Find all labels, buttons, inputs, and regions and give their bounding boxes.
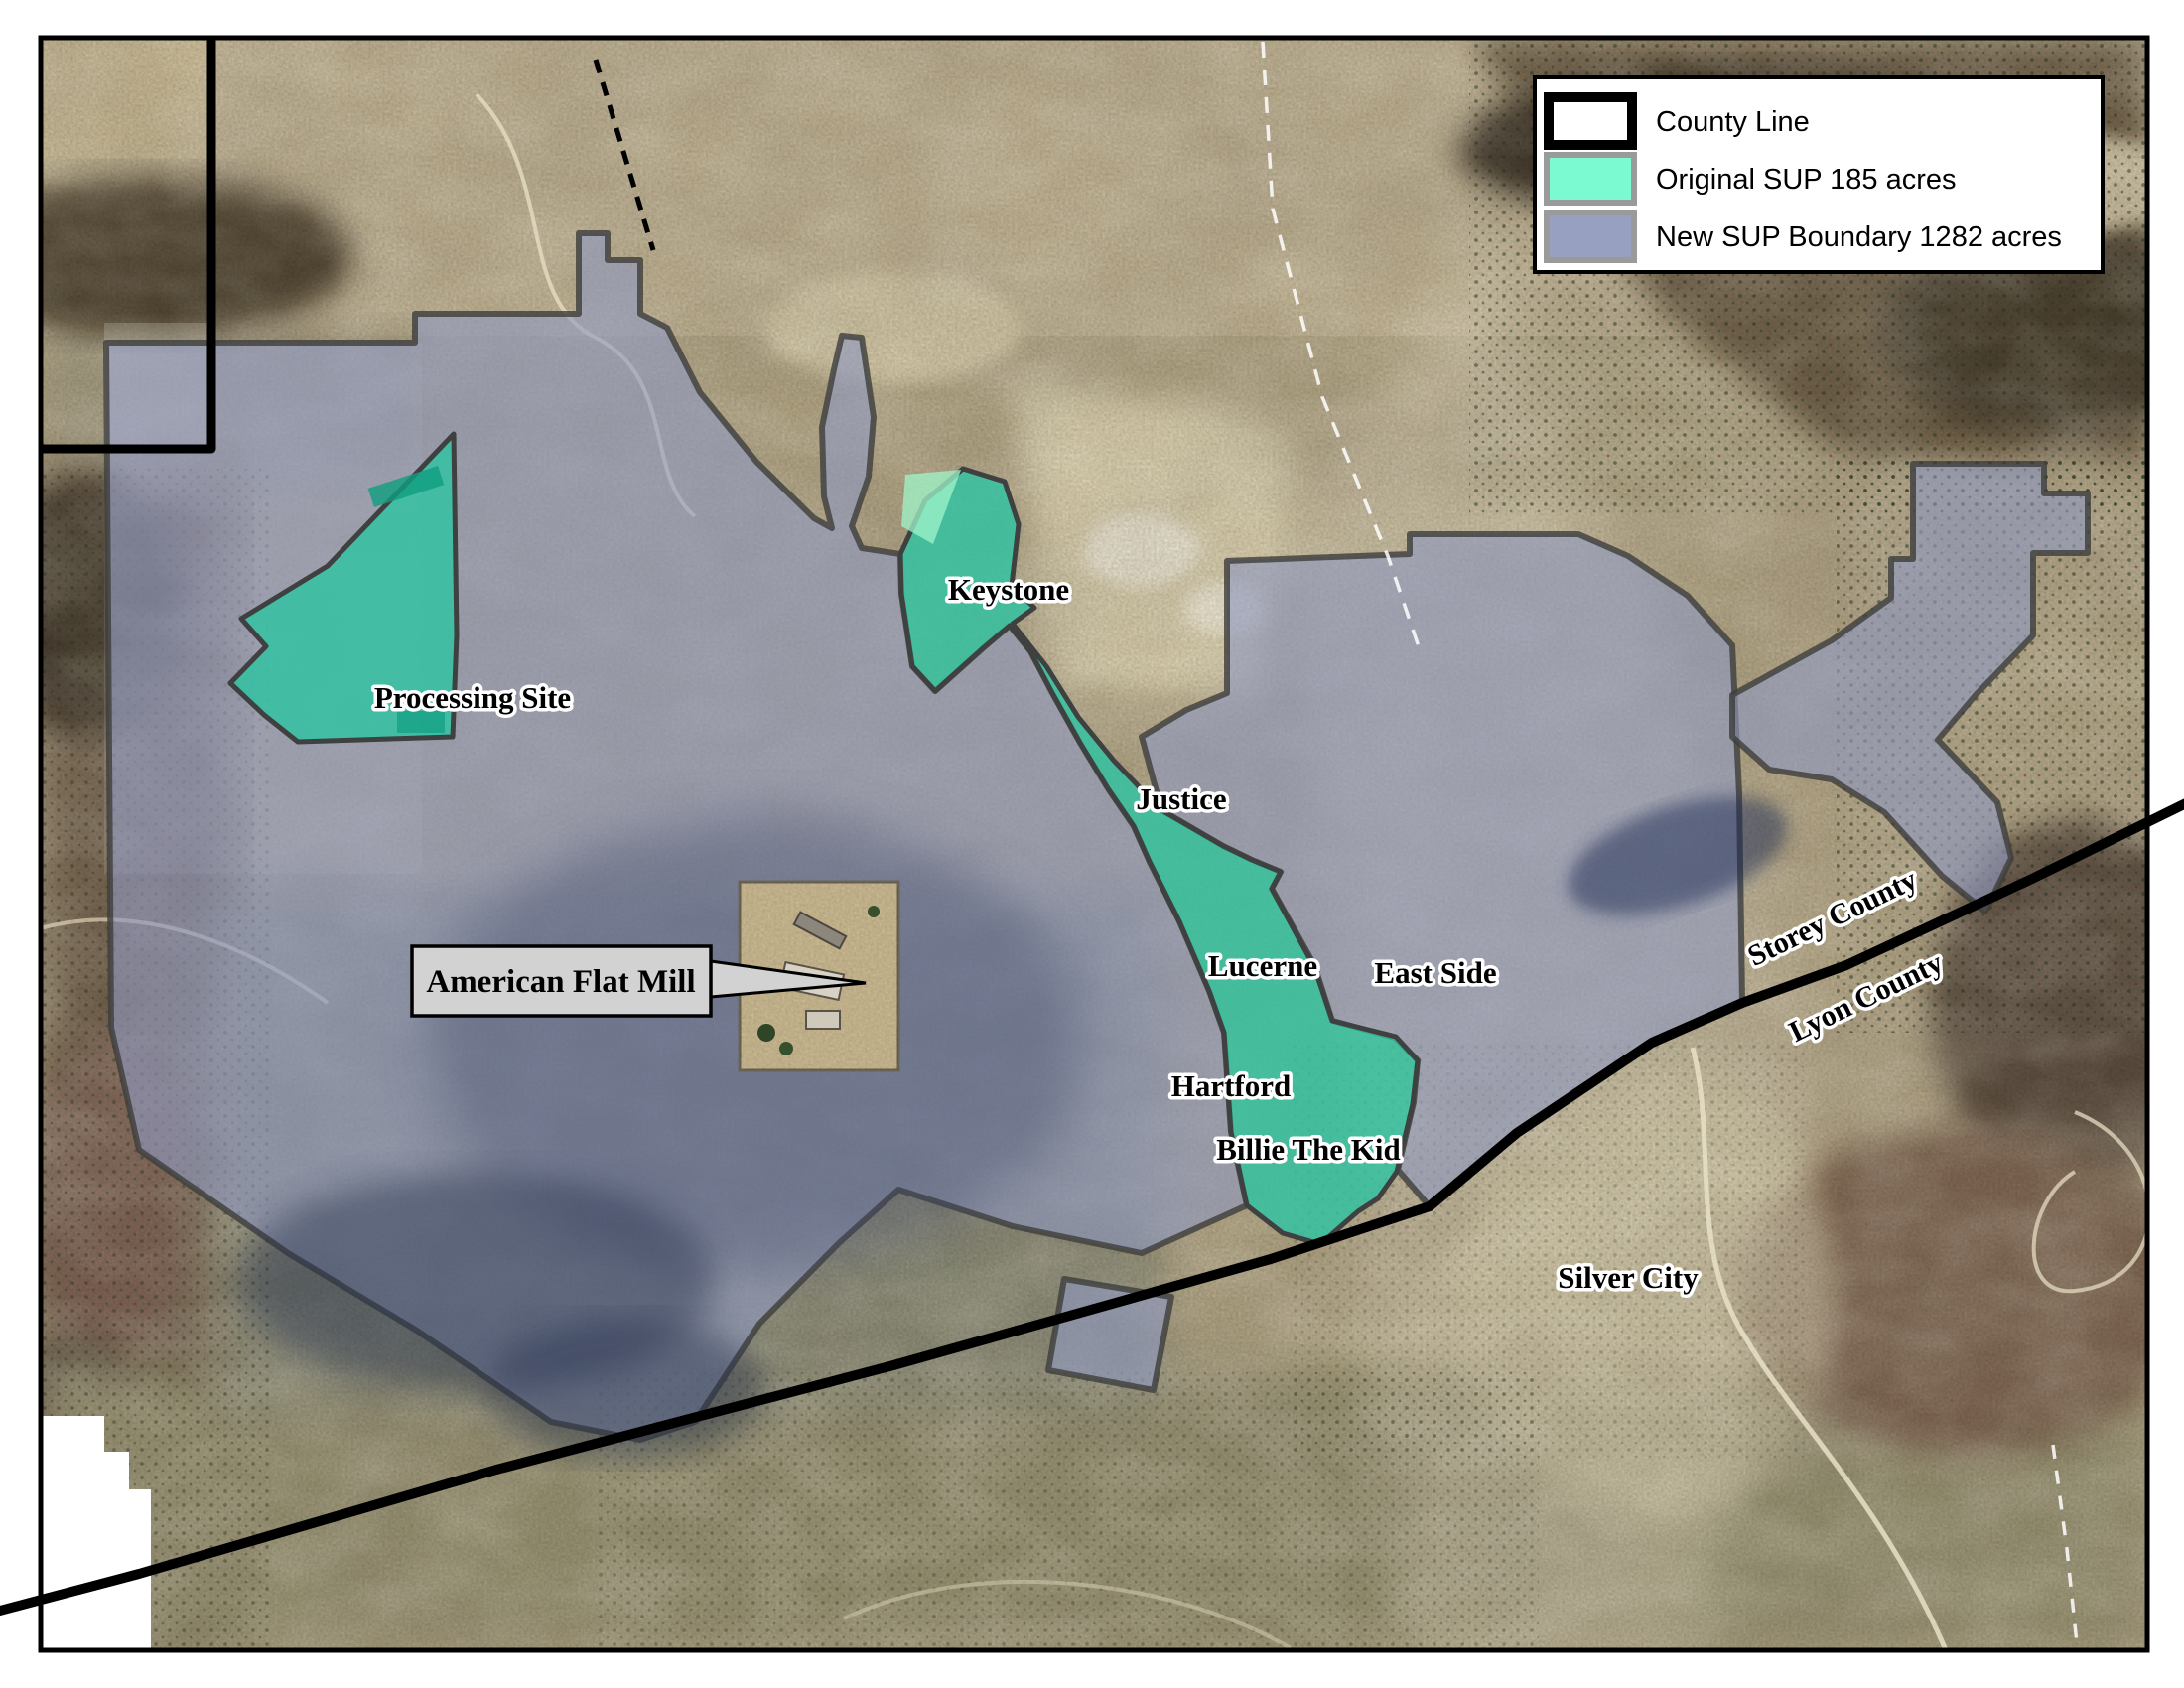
mill-building3 (806, 1011, 840, 1029)
label-justice: Justice (1136, 781, 1226, 816)
map-document: Processing Site Keystone Justice Lucerne… (0, 0, 2184, 1688)
label-billie-the-kid: Billie The Kid (1216, 1132, 1400, 1167)
label-silver-city: Silver City (1558, 1260, 1699, 1295)
legend-swatch-county-line (1549, 97, 1632, 145)
legend-label-county-line: County Line (1656, 106, 1810, 138)
mill-tree3 (868, 906, 880, 917)
label-processing-site: Processing Site (374, 680, 571, 715)
label-east-side: East Side (1374, 955, 1496, 990)
callout-label: American Flat Mill (426, 964, 695, 1000)
label-lucerne: Lucerne (1208, 948, 1317, 983)
legend-label-new-sup: New SUP Boundary 1282 acres (1656, 221, 2062, 253)
legend-label-original-sup: Original SUP 185 acres (1656, 164, 1957, 196)
map-canvas: Processing Site Keystone Justice Lucerne… (0, 0, 2184, 1688)
legend-swatch-original-sup (1547, 155, 1634, 203)
mill-tree1 (757, 1024, 775, 1042)
aerial-imagery (0, 38, 2184, 1688)
label-keystone: Keystone (948, 572, 1069, 607)
legend: County Line Original SUP 185 acres New S… (1535, 77, 2103, 272)
legend-swatch-new-sup (1547, 212, 1634, 260)
mill-tree2 (779, 1042, 793, 1055)
label-hartford: Hartford (1171, 1068, 1292, 1103)
